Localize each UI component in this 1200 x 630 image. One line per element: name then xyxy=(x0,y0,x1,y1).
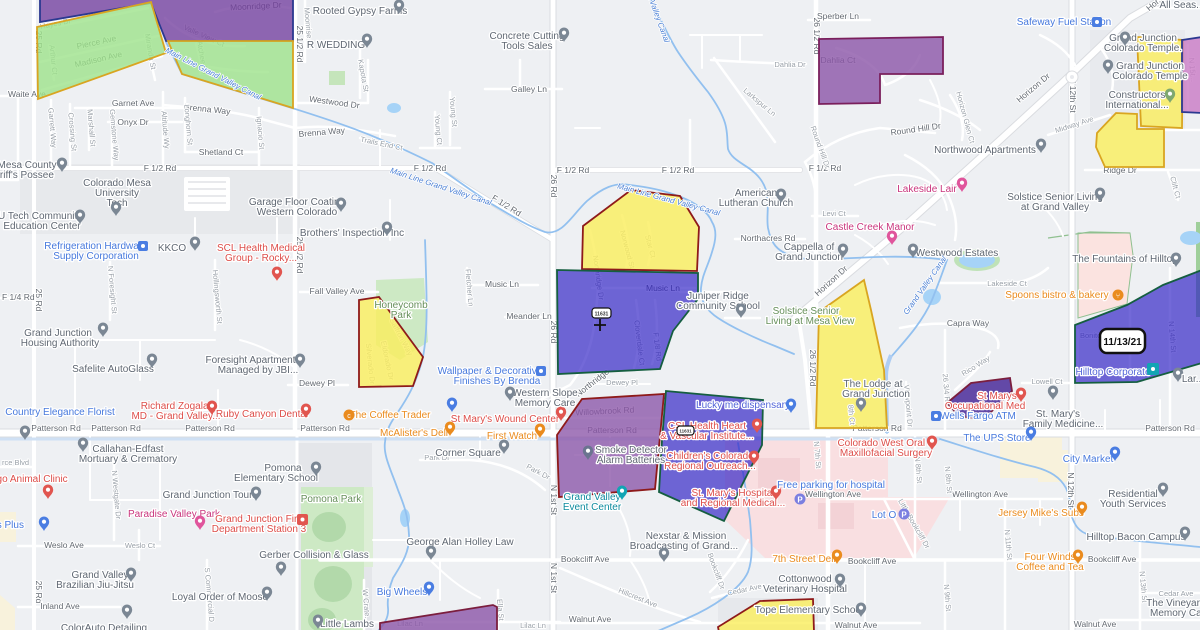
svg-text:Patterson Rd: Patterson Rd xyxy=(1145,423,1195,433)
svg-text:Colorado Temple.: Colorado Temple. xyxy=(1104,43,1182,54)
svg-text:Walnut Ave: Walnut Ave xyxy=(569,614,612,624)
svg-text:Shetland Ct: Shetland Ct xyxy=(199,147,244,157)
svg-text:⑂: ⑂ xyxy=(1116,293,1120,300)
svg-text:c: c xyxy=(347,413,351,420)
svg-text:Westwood Estates: Westwood Estates xyxy=(916,248,999,259)
svg-text:Grand Junction Tours: Grand Junction Tours xyxy=(163,490,258,501)
svg-text:Lot O: Lot O xyxy=(872,510,897,521)
svg-text:Weslo Ave: Weslo Ave xyxy=(44,540,84,550)
svg-text:Veterinary Hospital: Veterinary Hospital xyxy=(763,584,847,595)
svg-text:Housing Authority: Housing Authority xyxy=(21,338,99,349)
svg-text:Patterson Rd: Patterson Rd xyxy=(31,423,81,433)
svg-text:Brazilian Jiu-Jitsu: Brazilian Jiu-Jitsu xyxy=(56,580,134,591)
svg-text:Dahlia Dr: Dahlia Dr xyxy=(774,60,806,69)
svg-text:Inland Ave: Inland Ave xyxy=(40,601,80,611)
svg-text:Capra Way: Capra Way xyxy=(947,318,990,328)
svg-text:F 1/4 Rd: F 1/4 Rd xyxy=(2,292,35,302)
svg-text:George Alan Holley Law: George Alan Holley Law xyxy=(406,537,514,548)
svg-text:7th Street Deli: 7th Street Deli xyxy=(772,554,835,565)
svg-text:F 1/2 Rd: F 1/2 Rd xyxy=(144,163,177,173)
svg-text:igo Animal Clinic: igo Animal Clinic xyxy=(0,474,68,485)
svg-text:Music Ln: Music Ln xyxy=(485,279,519,289)
svg-text:The Fountains of Hilltop: The Fountains of Hilltop xyxy=(1072,254,1178,265)
svg-text:Managed by JBI...: Managed by JBI... xyxy=(218,365,299,376)
svg-text:Dewey Pl: Dewey Pl xyxy=(299,378,335,388)
svg-text:Department Station 3: Department Station 3 xyxy=(212,524,307,535)
svg-text:P: P xyxy=(797,496,803,505)
svg-text:Lilac Ln: Lilac Ln xyxy=(520,621,546,630)
svg-text:All Seas...: All Seas... xyxy=(1159,0,1200,11)
svg-text:Country Elegance Florist: Country Elegance Florist xyxy=(5,407,115,418)
svg-text:Ruby Canyon Dental: Ruby Canyon Dental xyxy=(216,409,308,420)
svg-text:Sperber Ln: Sperber Ln xyxy=(817,11,859,21)
svg-text:McAlister's Deli: McAlister's Deli xyxy=(380,428,448,439)
svg-text:Lakeside Lair: Lakeside Lair xyxy=(897,184,957,195)
svg-text:Community School: Community School xyxy=(676,301,760,312)
svg-text:Park: Park xyxy=(391,310,413,321)
svg-text:Fall Valley Ave: Fall Valley Ave xyxy=(310,286,365,296)
svg-text:First Watch: First Watch xyxy=(487,431,537,442)
svg-text:Gerber Collision & Glass: Gerber Collision & Glass xyxy=(259,550,368,561)
svg-text:The UPS Store: The UPS Store xyxy=(963,433,1031,444)
svg-text:Galley Ln: Galley Ln xyxy=(511,84,547,94)
svg-text:Supply Corporation: Supply Corporation xyxy=(53,251,139,262)
svg-text:N 1st St: N 1st St xyxy=(549,563,559,594)
svg-text:Walnut Ave: Walnut Ave xyxy=(835,620,878,630)
svg-text:Youth Services: Youth Services xyxy=(1100,499,1166,510)
svg-text:Patterson Rd: Patterson Rd xyxy=(91,423,141,433)
svg-text:Wells Fargo ATM: Wells Fargo ATM xyxy=(940,411,1016,422)
svg-text:& Vascular Institute...: & Vascular Institute... xyxy=(660,431,754,442)
svg-text:8th Ct: 8th Ct xyxy=(846,404,857,426)
svg-text:Hilltop Corporate: Hilltop Corporate xyxy=(1075,367,1150,378)
svg-text:Tope Elementary School: Tope Elementary School xyxy=(755,605,863,616)
svg-text:Levi Ct: Levi Ct xyxy=(822,209,846,218)
svg-text:St Mary's Wound Center: St Mary's Wound Center xyxy=(451,414,560,425)
svg-text:26 Rd: 26 Rd xyxy=(549,175,559,198)
svg-text:KKCO: KKCO xyxy=(158,243,187,254)
svg-text:Garnet Ave: Garnet Ave xyxy=(112,98,155,108)
svg-text:Maxillofacial Surgery: Maxillofacial Surgery xyxy=(840,448,932,459)
svg-text:Hilltop Bacon Campus: Hilltop Bacon Campus xyxy=(1087,532,1186,543)
svg-text:F 1/2 Rd: F 1/2 Rd xyxy=(414,163,447,173)
svg-text:Corner Square: Corner Square xyxy=(435,448,501,459)
svg-text:Coffee and Tea: Coffee and Tea xyxy=(1016,562,1084,573)
svg-text:Memory Ca...: Memory Ca... xyxy=(1150,608,1200,619)
svg-text:Paradise Valley Park: Paradise Valley Park xyxy=(128,509,221,520)
svg-text:Tools Sales: Tools Sales xyxy=(501,41,552,52)
svg-text:Living at Mesa View: Living at Mesa View xyxy=(766,316,856,327)
svg-text:International...: International... xyxy=(1105,100,1168,111)
svg-text:N 12th St: N 12th St xyxy=(1066,472,1076,508)
svg-text:Elementary School: Elementary School xyxy=(234,473,318,484)
svg-text:Sheriff's Possee: Sheriff's Possee xyxy=(0,170,54,181)
svg-text:Loyal Order of Moose: Loyal Order of Moose xyxy=(172,592,269,603)
svg-text:Group - Rocky...: Group - Rocky... xyxy=(225,253,297,264)
svg-text:Rooted Gypsy Farms: Rooted Gypsy Farms xyxy=(313,6,407,17)
svg-text:Patterson Rd: Patterson Rd xyxy=(300,423,350,433)
svg-text:25 Rd: 25 Rd xyxy=(34,289,44,312)
svg-text:Finishes By Brenda: Finishes By Brenda xyxy=(454,376,541,387)
svg-text:Bookcliff Ave: Bookcliff Ave xyxy=(561,554,610,564)
svg-text:Lar...: Lar... xyxy=(1182,374,1200,385)
svg-text:eries Plus: eries Plus xyxy=(0,520,24,531)
svg-text:Free parking for hospital: Free parking for hospital xyxy=(777,480,885,491)
svg-text:Western Colorado: Western Colorado xyxy=(257,207,338,218)
svg-text:11631: 11631 xyxy=(595,312,609,318)
svg-text:MD - Grand Valley...: MD - Grand Valley... xyxy=(131,411,220,422)
svg-text:Wellington Ave: Wellington Ave xyxy=(952,489,1008,499)
svg-text:Lakeside Ct: Lakeside Ct xyxy=(987,279,1028,288)
svg-text:at Grand Valley: at Grand Valley xyxy=(1021,202,1089,213)
svg-text:Walnut Ave: Walnut Ave xyxy=(1074,619,1117,629)
svg-text:Safelite AutoGlass: Safelite AutoGlass xyxy=(72,364,154,375)
svg-text:Memory Care: Memory Care xyxy=(515,398,576,409)
svg-text:The Coffee Trader: The Coffee Trader xyxy=(350,410,432,421)
svg-text:Event Center: Event Center xyxy=(563,502,622,513)
svg-text:Grand Junction: Grand Junction xyxy=(842,389,910,400)
svg-text:ColorAuto Detailing: ColorAuto Detailing xyxy=(61,623,147,630)
svg-text:25 1/2 Rd: 25 1/2 Rd xyxy=(295,26,305,63)
svg-text:Patterson Rd: Patterson Rd xyxy=(185,423,235,433)
svg-text:N 1st St: N 1st St xyxy=(549,485,559,516)
svg-text:R WEDDING: R WEDDING xyxy=(307,40,366,51)
svg-text:Meander Ln: Meander Ln xyxy=(506,311,552,321)
svg-text:Alarm Batteries: Alarm Batteries xyxy=(597,455,665,466)
svg-text:City Market: City Market xyxy=(1063,454,1114,465)
svg-text:Big Wheels: Big Wheels xyxy=(377,587,428,598)
svg-text:Education Center: Education Center xyxy=(3,221,81,232)
svg-text:Bookcliff Ave: Bookcliff Ave xyxy=(848,556,897,566)
svg-text:Little Lambs: Little Lambs xyxy=(320,619,374,630)
svg-text:Grand Junction: Grand Junction xyxy=(775,252,843,263)
svg-text:Spoons bistro & bakery: Spoons bistro & bakery xyxy=(1005,290,1108,301)
svg-text:Dewey Pl: Dewey Pl xyxy=(606,378,638,387)
svg-text:P: P xyxy=(901,511,907,520)
svg-text:F 1/2 Rd: F 1/2 Rd xyxy=(557,165,590,175)
svg-text:rce Blvd: rce Blvd xyxy=(2,458,29,467)
svg-text:11631: 11631 xyxy=(679,429,692,434)
svg-text:Northwood Apartments: Northwood Apartments xyxy=(934,145,1036,156)
svg-text:Pomona Park: Pomona Park xyxy=(301,494,363,505)
svg-text:Jersey Mike's Subs: Jersey Mike's Subs xyxy=(998,508,1084,519)
svg-text:Weslo Ct: Weslo Ct xyxy=(125,541,156,550)
svg-text:Lucky me dispensary: Lucky me dispensary xyxy=(696,400,790,411)
svg-text:Mortuary & Crematory: Mortuary & Crematory xyxy=(79,454,177,465)
svg-text:Castle Creek Manor: Castle Creek Manor xyxy=(826,222,916,233)
svg-text:Lowell Ct: Lowell Ct xyxy=(1032,377,1064,386)
svg-text:Bookcliff Ave: Bookcliff Ave xyxy=(1088,554,1137,564)
svg-text:Cedar Ave: Cedar Ave xyxy=(1159,589,1194,598)
svg-text:Onyx Dr: Onyx Dr xyxy=(117,117,148,127)
svg-text:and Regional Medical...: and Regional Medical... xyxy=(681,498,786,509)
svg-text:Broadcasting of Grand...: Broadcasting of Grand... xyxy=(630,541,738,552)
svg-text:Colorado Temple: Colorado Temple xyxy=(1112,71,1188,82)
svg-text:Regional Outreach...: Regional Outreach... xyxy=(664,461,756,472)
svg-text:F 1/2 Rd: F 1/2 Rd xyxy=(662,165,695,175)
svg-text:11/13/21: 11/13/21 xyxy=(1103,337,1142,348)
